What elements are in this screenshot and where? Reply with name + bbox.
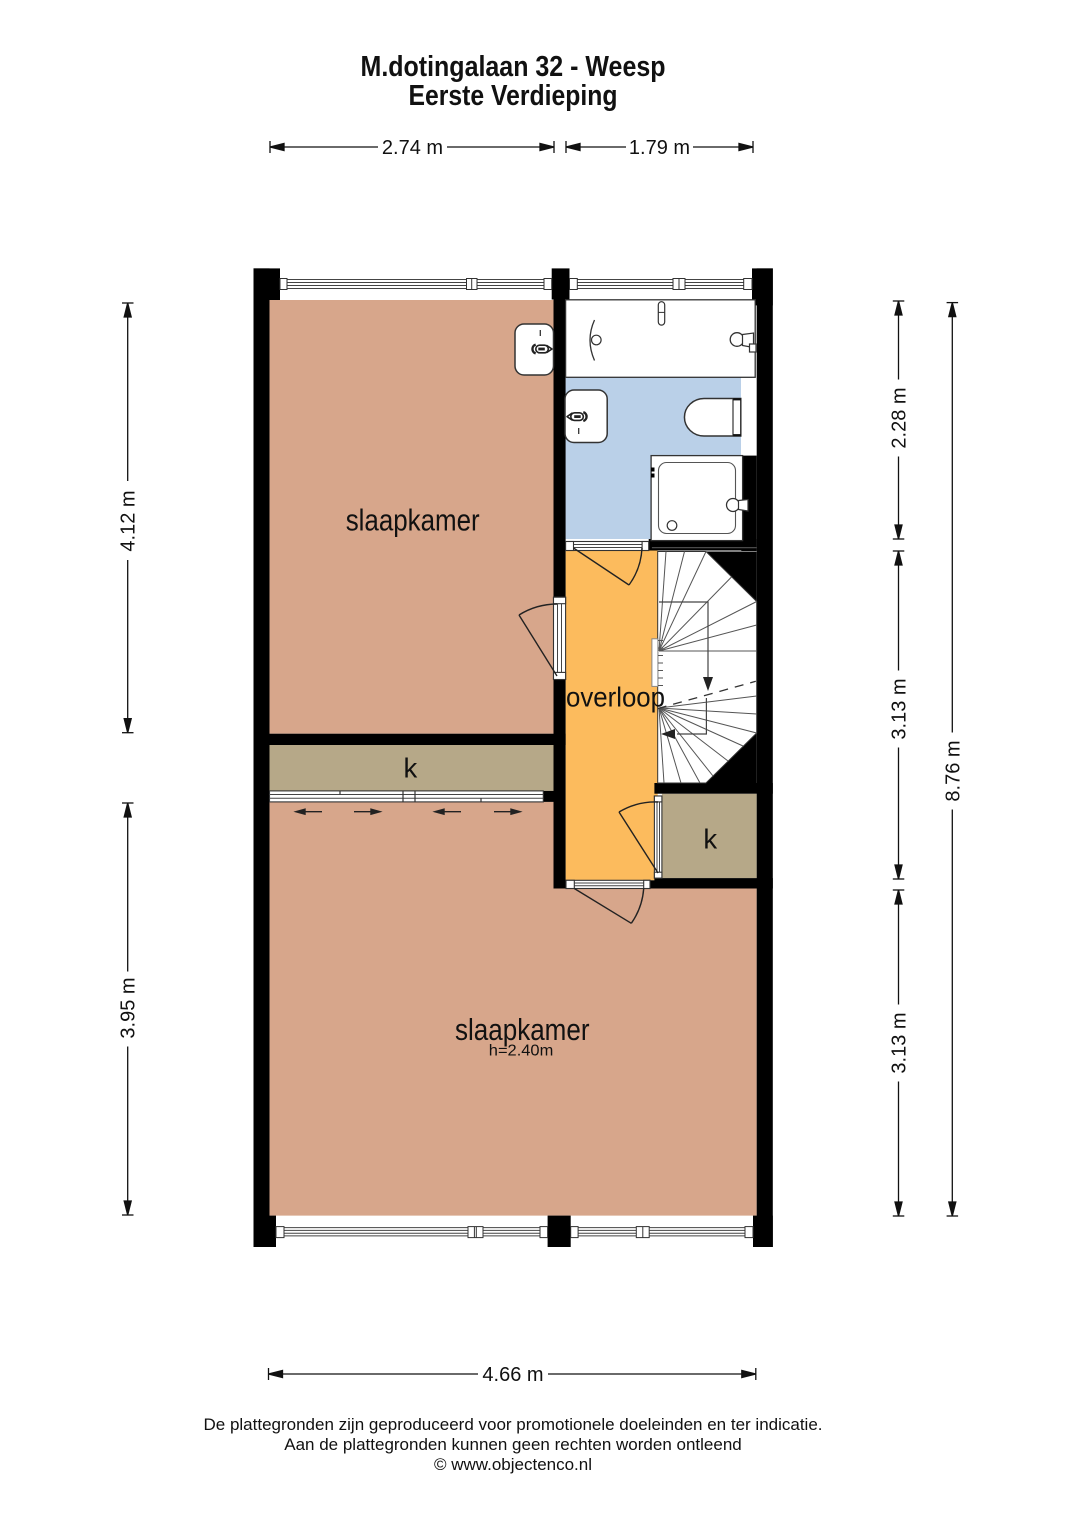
svg-text:k: k	[703, 824, 717, 855]
svg-text:De plattegronden zijn geproduc: De plattegronden zijn geproduceerd voor …	[203, 1415, 822, 1434]
svg-text:© www.objectenco.nl: © www.objectenco.nl	[434, 1455, 592, 1474]
svg-text:8.76 m: 8.76 m	[942, 740, 964, 801]
svg-text:4.66 m: 4.66 m	[482, 1364, 543, 1386]
svg-text:3.13 m: 3.13 m	[889, 678, 911, 739]
svg-text:4.12 m: 4.12 m	[118, 490, 140, 551]
svg-text:M.dotingalaan 32 - Weesp: M.dotingalaan 32 - Weesp	[361, 51, 666, 83]
svg-text:1.79 m: 1.79 m	[629, 137, 690, 159]
svg-text:3.95 m: 3.95 m	[118, 977, 140, 1038]
svg-text:Eerste Verdieping: Eerste Verdieping	[409, 80, 618, 112]
svg-text:overloop: overloop	[566, 682, 665, 713]
svg-text:3.13 m: 3.13 m	[889, 1012, 911, 1073]
svg-text:2.28 m: 2.28 m	[889, 387, 911, 448]
svg-text:slaapkamer: slaapkamer	[346, 502, 480, 537]
svg-text:h=2.40m: h=2.40m	[489, 1043, 554, 1060]
svg-text:2.74 m: 2.74 m	[382, 137, 443, 159]
svg-text:k: k	[404, 753, 418, 784]
svg-text:Aan de plattegronden kunnen ge: Aan de plattegronden kunnen geen rechten…	[284, 1435, 741, 1454]
